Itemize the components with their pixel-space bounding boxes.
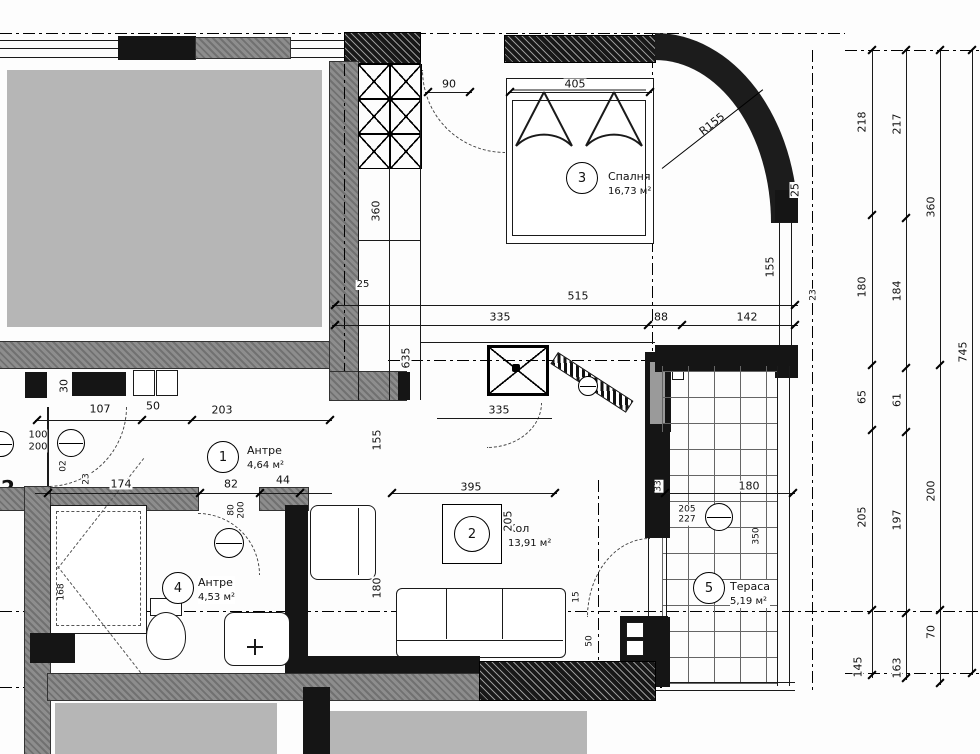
room-area: 16,73 м² — [608, 185, 651, 199]
room-name: Спалня — [608, 170, 651, 185]
terrace-door-size: 205 227 — [678, 505, 695, 526]
room-number-text: 1 — [219, 450, 227, 465]
dim-line — [662, 493, 795, 494]
terrace-door-tag-circle — [705, 503, 733, 531]
dim-635: 635 — [401, 347, 412, 370]
dim-61: 61 — [892, 392, 903, 408]
room-label-terrace: Тераса 5,19 м² — [730, 580, 770, 608]
sink-cross — [254, 639, 256, 655]
dim-197: 197 — [892, 509, 903, 532]
dim-360-wardrobe: 360 — [371, 200, 382, 223]
dim-15: 15 — [573, 590, 582, 603]
door-width: 205 — [678, 505, 695, 515]
wall-pier — [72, 372, 126, 396]
bedroom-door-arc — [422, 70, 505, 153]
axis-line-bottom-right — [845, 673, 980, 674]
sink — [224, 612, 290, 666]
room-name: Тераса — [730, 580, 770, 595]
room-number-text: 2 — [468, 527, 476, 542]
cabinet-box — [133, 370, 155, 396]
dim-line — [35, 493, 332, 494]
wardrobe-line — [420, 62, 421, 400]
tv-cabinet-box — [626, 640, 644, 656]
terrace-rail — [777, 366, 778, 686]
room-number-text: 5 — [705, 581, 713, 596]
dim-217: 217 — [892, 113, 903, 136]
wall-bottom-dark — [300, 656, 480, 674]
wall-horizontal — [0, 342, 332, 368]
dim-chain-top-right — [845, 50, 980, 51]
bath-door-tag-circle — [214, 528, 244, 558]
room-number-bath: 4 — [162, 572, 194, 604]
wardrobe-box — [390, 64, 422, 99]
dim-33: 33 — [655, 479, 664, 492]
door-height: 227 — [678, 515, 695, 525]
dim-205-right: 205 — [857, 506, 868, 529]
balcony-door-frame — [666, 538, 667, 617]
bed-pillows — [508, 88, 650, 152]
room-name: Антре — [247, 444, 284, 459]
room-area: 4,53 м² — [198, 591, 235, 605]
wardrobe-box — [358, 134, 390, 169]
wall-center-line — [344, 64, 345, 398]
room-divider-line — [420, 342, 655, 343]
dim-200: 200 — [926, 480, 937, 503]
dim-142: 142 — [736, 312, 759, 323]
dim-50-sofa: 50 — [586, 634, 595, 647]
dim-88: 88 — [653, 312, 669, 323]
dim-163: 163 — [892, 657, 903, 680]
dim-02: 02 — [60, 459, 69, 472]
dim-107: 107 — [89, 404, 112, 415]
wardrobe-box — [390, 134, 422, 169]
dim-155-right: 155 — [765, 256, 776, 279]
redacted-area-3 — [330, 711, 587, 754]
wall-pier — [25, 372, 47, 398]
toilet-bowl — [146, 612, 186, 660]
wall-cap — [398, 372, 410, 400]
bath-door-size: 80 200 — [227, 501, 248, 518]
balcony-door-arc — [587, 538, 650, 617]
dim-515: 515 — [567, 291, 590, 302]
armchair-back-line — [358, 508, 359, 575]
dim-745: 745 — [958, 341, 969, 364]
dim-90: 90 — [441, 79, 457, 90]
dim-218: 218 — [857, 111, 868, 134]
edge-door-tag-circle — [0, 431, 14, 457]
door-width: 100 — [28, 430, 47, 442]
wardrobe-box — [358, 64, 390, 99]
sofa-divider — [446, 589, 447, 639]
dim-line — [332, 325, 798, 326]
dim-174: 174 — [110, 479, 133, 490]
dim-203: 203 — [211, 405, 234, 416]
window-line-right — [779, 222, 780, 346]
room-area: 5,19 м² — [730, 595, 770, 609]
dim-line — [425, 92, 472, 93]
dim-70: 70 — [926, 624, 937, 640]
dim-25-right: 25 — [790, 182, 801, 198]
dim-44: 44 — [275, 475, 291, 486]
dim-line — [437, 418, 552, 419]
door-height: 200 — [237, 501, 247, 518]
room-label-bath: Антре 4,53 м² — [198, 576, 235, 604]
axis-line-right — [812, 50, 813, 690]
room-number-entry: 1 — [207, 441, 239, 473]
dim-335-kitchen: 335 — [488, 405, 511, 416]
wall-corner-block — [30, 633, 75, 663]
dim-line — [332, 305, 798, 306]
wardrobe-line — [358, 240, 420, 241]
dim-145: 145 — [853, 656, 864, 679]
dim-180-hall: 180 — [372, 577, 383, 600]
dim-205-hol: 205 — [503, 510, 514, 533]
dim-25-wall: 25 — [356, 280, 371, 290]
terrace-bottom — [655, 682, 795, 683]
dim-82: 82 — [223, 479, 239, 490]
wardrobe-box — [358, 99, 390, 134]
floor-plan: 3 Спалня 16,73 м² R155 5 Тераса 5,19 м² … — [0, 0, 980, 754]
sofa-divider — [502, 589, 503, 639]
wall-bottom-hatched — [480, 662, 655, 700]
dim-335-mid: 335 — [489, 312, 512, 323]
radiator-tag-circle — [578, 376, 598, 396]
tv-cabinet-box — [626, 622, 644, 638]
armchair — [310, 505, 376, 580]
redacted-area-1 — [7, 70, 322, 327]
wardrobe-box — [390, 99, 422, 134]
dim-168: 168 — [58, 582, 67, 601]
wall-above-bed — [505, 36, 655, 62]
dim-395: 395 — [460, 482, 483, 493]
dim-23-left: 23 — [83, 472, 92, 485]
room-label-livingroom: Хол 13,91 м² — [508, 522, 551, 550]
cabinet-box — [156, 370, 178, 396]
kitchen-shaft-dot — [512, 364, 520, 372]
axis-line-top — [0, 33, 845, 34]
redacted-area-2 — [55, 703, 277, 754]
dim-line-v — [972, 50, 973, 675]
dim-360-right: 360 — [926, 196, 937, 219]
entry-door-size: 100 200 — [28, 430, 47, 453]
dim-184: 184 — [892, 280, 903, 303]
dim-155-hall: 155 — [372, 429, 383, 452]
wardrobe-line — [389, 167, 390, 400]
door-width: 80 — [227, 501, 237, 518]
dim-180-terrace: 180 — [738, 481, 761, 492]
room-label-entry: Антре 4,64 м² — [247, 444, 284, 472]
door-height: 200 — [28, 441, 47, 453]
room-number-text: 4 — [174, 581, 182, 596]
room-number-terrace: 5 — [693, 572, 725, 604]
wall-stub — [330, 372, 406, 400]
dim-30: 30 — [59, 378, 70, 394]
room-label-bedroom: Спалня 16,73 м² — [608, 170, 651, 198]
dim-50-left: 50 — [145, 401, 161, 412]
room-area: 4,64 м² — [247, 459, 284, 473]
sofa — [396, 588, 566, 658]
shower-inner — [56, 511, 141, 626]
dim-65: 65 — [857, 389, 868, 405]
wall-segment — [118, 36, 196, 60]
room-number-livingroom: 2 — [454, 516, 490, 552]
dim-23-right: 23 — [810, 288, 819, 301]
dim-line-v — [940, 50, 941, 685]
room-number-bedroom: 3 — [566, 162, 598, 194]
room-name: Хол — [508, 522, 551, 537]
terrace-bottom — [655, 690, 795, 691]
room-area: 13,91 м² — [508, 537, 551, 551]
dim-350: 350 — [753, 526, 762, 545]
wall-left-outer — [25, 487, 50, 754]
wall-bottom — [48, 674, 480, 700]
room-name: Антре — [198, 576, 235, 591]
terrace-rail — [789, 366, 790, 686]
wall-shaft-top — [345, 33, 420, 63]
dim-405: 405 — [564, 79, 587, 90]
dim-line — [35, 420, 332, 421]
dim-180-right: 180 — [857, 276, 868, 299]
wall-segment — [196, 38, 290, 58]
room-number-text: 3 — [578, 171, 586, 186]
dim-line — [508, 92, 652, 93]
entry-door-tag-circle — [57, 429, 85, 457]
wall-bottom-pier — [303, 687, 330, 754]
sofa-seat-line — [397, 640, 563, 641]
